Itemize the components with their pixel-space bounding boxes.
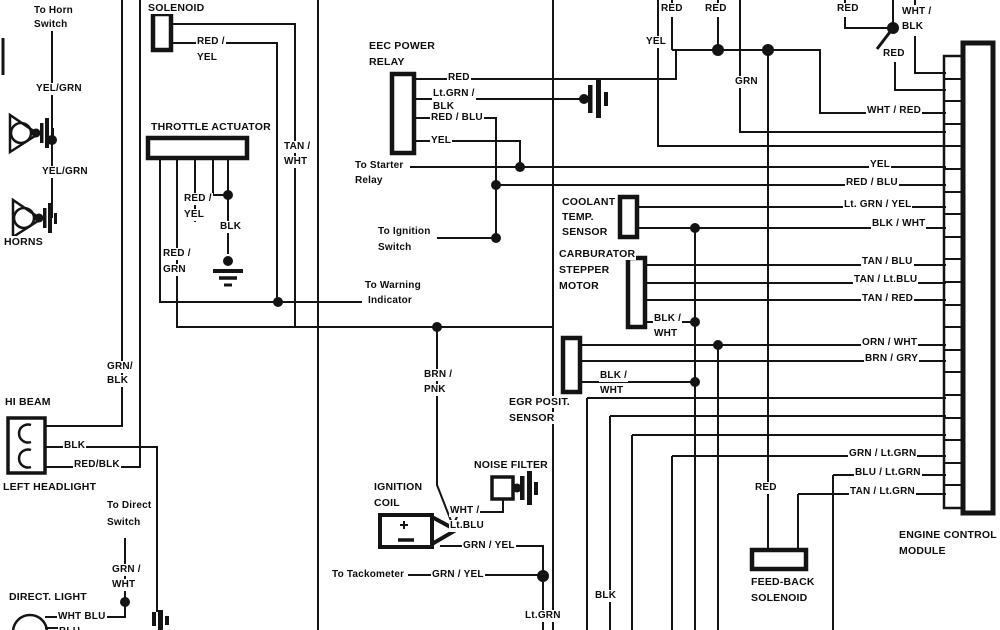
carburator-stepper-motor-label-2: STEPPER <box>558 264 610 276</box>
direction-light-icon <box>13 615 47 630</box>
wire-color-label: TAN / Lt.GRN <box>849 486 916 498</box>
left-headlight-icon <box>8 418 45 473</box>
ignition-coil-label-2: COIL <box>373 497 401 509</box>
capacitor-ground-icon <box>152 610 169 630</box>
wire-color-label: YEL/GRN <box>41 166 89 178</box>
engine-control-module-label-1: ENGINE CONTROL <box>898 529 998 541</box>
wire-color-label: WHT / <box>449 505 480 517</box>
egr-position-sensor-box <box>563 338 580 392</box>
to-tackometer-label: To Tackometer <box>331 569 405 581</box>
wire-color-label: TAN / RED <box>861 293 914 305</box>
wire-color-label: RED / BLU <box>845 177 899 189</box>
ignition-coil-label-1: IGNITION <box>373 481 423 493</box>
wire-color-label: BRN / GRY <box>864 353 919 365</box>
solenoid-box <box>153 14 171 50</box>
wire-color-label: GRN / YEL <box>462 540 516 552</box>
hi-beam-label: HI BEAM <box>4 396 52 408</box>
capacitor-ground-icon <box>513 471 539 505</box>
coolant-temp-sensor-box <box>620 197 637 237</box>
wire-color-label: BLK / <box>653 313 682 325</box>
wire-color-label: YEL <box>183 209 205 221</box>
wire-color-label: WHT / <box>901 6 932 18</box>
wire-color-label: Lt.GRN <box>524 610 562 622</box>
solenoid-label: SOLENOID <box>147 2 205 14</box>
wire-color-label: BRN / <box>423 369 453 381</box>
wire-color-label: Lt.BLU <box>449 520 485 532</box>
carburator-stepper-motor-label-3: MOTOR <box>558 280 600 292</box>
wire-color-label: GRN / Lt.GRN <box>848 448 917 460</box>
wire-color-label: YEL <box>869 159 891 171</box>
wire-color-label: WHT <box>111 579 136 591</box>
wire-color-label: GRN / YEL <box>431 569 485 581</box>
to-horn-switch-label-2: Switch <box>33 19 68 31</box>
wire-color-label: RED <box>447 72 471 84</box>
to-direct-switch-label-2: Switch <box>106 517 141 529</box>
horn-icon <box>10 115 54 152</box>
to-starter-relay-label-2: Relay <box>354 175 384 187</box>
horns-label: HORNS <box>3 236 44 248</box>
wiring-diagram-svg <box>0 0 1000 630</box>
wire-color-label: RED/BLK <box>73 459 121 471</box>
wire-color-label: GRN/ <box>106 361 134 373</box>
wire-color-label: RED <box>754 482 778 494</box>
carburator-stepper-motor-label-1: CARBURATOR <box>558 248 636 260</box>
wire-color-label: BLU / Lt.GRN <box>854 467 922 479</box>
to-direct-switch-label-1: To Direct <box>106 500 152 512</box>
wire-color-label: GRN <box>734 76 759 88</box>
wire-color-label: GRN / <box>111 564 142 576</box>
wiring-diagram: To Horn Switch YEL/GRN YEL/GRN HORNS HI … <box>0 0 1000 630</box>
wire-color-label: RED <box>836 3 860 15</box>
wire-color-label: TAN / <box>283 141 311 153</box>
wire-color-label: RED <box>660 3 684 15</box>
throttle-actuator-label: THROTTLE ACTUATOR <box>150 121 272 133</box>
engine-control-module-connector <box>944 43 993 513</box>
direct-light-label: DIRECT. LIGHT <box>8 591 88 603</box>
wire-color-label: YEL <box>645 36 667 48</box>
wire-color-label: BLK <box>594 590 617 602</box>
wire-color-label: ORN / WHT <box>861 337 918 349</box>
carburator-stepper-motor-box <box>628 258 645 327</box>
wire-color-label: RED / BLU <box>430 112 484 124</box>
wire-color-label: BLK / <box>599 370 628 382</box>
capacitor-ground-icon <box>579 80 608 118</box>
engine-control-module-label-2: MODULE <box>898 545 947 557</box>
wire-color-label: Lt. GRN / YEL <box>843 199 912 211</box>
wire-color-label: TAN / Lt.BLU <box>853 274 918 286</box>
feed-back-solenoid-box <box>752 550 806 569</box>
eec-power-relay-label-1: EEC POWER <box>368 40 436 52</box>
to-ignition-switch-label-2: Switch <box>377 242 412 254</box>
wire-color-label: PNK <box>423 384 447 396</box>
wire-color-label: Lt.GRN / <box>432 88 476 100</box>
wire-color-label: TAN / BLU <box>861 256 914 268</box>
wire-color-label: YEL <box>196 52 218 64</box>
eec-power-relay-box <box>392 74 414 153</box>
coolant-temp-sensor-label-1: COOLANT <box>561 196 616 208</box>
left-headlight-label: LEFT HEADLIGHT <box>2 481 97 493</box>
coolant-temp-sensor-label-2: TEMP. <box>561 211 595 223</box>
wire-color-label: BLK <box>63 440 86 452</box>
egr-position-sensor-label-2: SENSOR <box>508 412 556 424</box>
wire-color-label: RED / <box>196 36 226 48</box>
wire-color-label: BLU <box>58 626 81 630</box>
wire-color-label: BLK <box>901 21 924 33</box>
wire-color-label: WHT BLU <box>57 611 107 623</box>
wire-color-label: BLK <box>106 375 129 387</box>
wire-color-label: YEL/GRN <box>35 83 83 95</box>
coolant-temp-sensor-label-3: SENSOR <box>561 226 609 238</box>
throttle-actuator-box <box>148 138 247 158</box>
wire-color-label: WHT <box>283 156 308 168</box>
to-ignition-switch-label-1: To Ignition <box>377 226 432 238</box>
egr-position-sensor-label-1: EGR POSIT. <box>508 396 571 408</box>
wire-color-label: RED <box>882 48 906 60</box>
wire-color-label: WHT / RED <box>866 105 922 117</box>
to-warning-indicator-label-1: To Warning <box>364 280 422 292</box>
wire-color-label: YEL <box>430 135 452 147</box>
feed-back-solenoid-label-2: SOLENOID <box>750 592 808 604</box>
wire-color-label: BLK / WHT <box>871 218 926 230</box>
wire-color-label: RED <box>704 3 728 15</box>
eec-power-relay-label-2: RELAY <box>368 56 406 68</box>
horn-icon <box>13 200 57 237</box>
to-warning-indicator-label-2: Indicator <box>367 295 413 307</box>
chassis-ground-icon <box>213 256 243 285</box>
wire-color-label: GRN <box>162 264 187 276</box>
to-horn-switch-label-1: To Horn <box>33 5 74 17</box>
noise-filter-box <box>492 477 513 499</box>
feed-back-solenoid-label-1: FEED-BACK <box>750 576 816 588</box>
wire-color-label: WHT <box>599 385 624 397</box>
ignition-coil-icon <box>380 515 456 547</box>
wire-color-label: RED / <box>162 248 192 260</box>
to-starter-relay-label-1: To Starter <box>354 160 405 172</box>
noise-filter-label: NOISE FILTER <box>473 459 549 471</box>
wire-color-label: BLK <box>219 221 242 233</box>
wire-color-label: RED / <box>183 193 213 205</box>
wire-color-label: WHT <box>653 328 678 340</box>
